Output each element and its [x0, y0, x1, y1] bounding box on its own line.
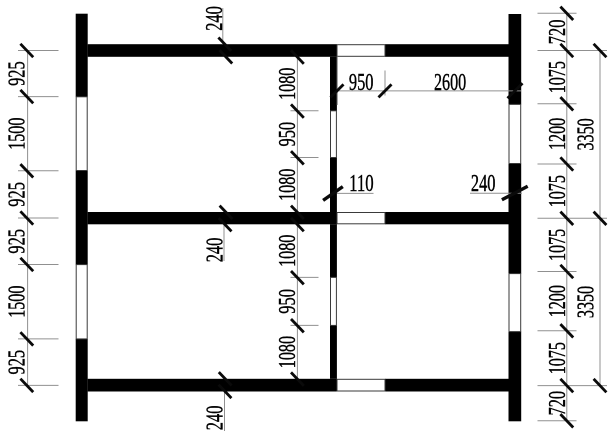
svg-text:240: 240 — [202, 406, 228, 431]
svg-text:240: 240 — [471, 171, 496, 197]
svg-text:3350: 3350 — [574, 118, 600, 150]
svg-text:720: 720 — [545, 391, 571, 416]
svg-text:1075: 1075 — [545, 229, 571, 261]
svg-text:1075: 1075 — [545, 61, 571, 93]
svg-text:925: 925 — [5, 61, 31, 86]
svg-text:1200: 1200 — [545, 118, 571, 150]
svg-text:3350: 3350 — [574, 286, 600, 318]
svg-text:240: 240 — [202, 6, 228, 31]
svg-text:2600: 2600 — [434, 70, 466, 96]
svg-text:720: 720 — [545, 20, 571, 45]
svg-text:1075: 1075 — [545, 342, 571, 374]
svg-text:950: 950 — [349, 70, 374, 96]
svg-text:1075: 1075 — [545, 175, 571, 207]
svg-text:925: 925 — [5, 229, 31, 254]
svg-text:1080: 1080 — [275, 336, 301, 368]
svg-text:950: 950 — [275, 122, 301, 147]
svg-text:1080: 1080 — [275, 169, 301, 201]
svg-text:925: 925 — [5, 350, 31, 375]
svg-text:110: 110 — [349, 171, 374, 197]
svg-text:240: 240 — [203, 238, 229, 263]
svg-text:1080: 1080 — [275, 68, 301, 100]
svg-text:1500: 1500 — [5, 118, 31, 150]
svg-text:950: 950 — [275, 289, 301, 314]
svg-text:925: 925 — [5, 182, 31, 207]
svg-text:1080: 1080 — [275, 235, 301, 267]
svg-text:1500: 1500 — [5, 286, 31, 318]
svg-text:1200: 1200 — [545, 285, 571, 317]
